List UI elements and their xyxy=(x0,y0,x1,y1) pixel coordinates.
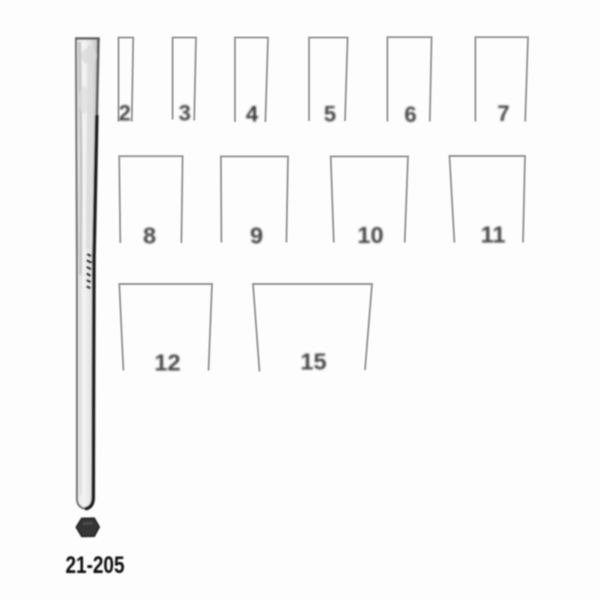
svg-text:9: 9 xyxy=(250,223,263,249)
svg-text:15: 15 xyxy=(300,349,326,375)
svg-text:21-205: 21-205 xyxy=(66,552,125,579)
svg-text:10: 10 xyxy=(357,222,383,248)
svg-text:4: 4 xyxy=(246,102,259,127)
svg-text:12: 12 xyxy=(154,350,180,376)
svg-text:8: 8 xyxy=(143,223,156,249)
svg-text:5: 5 xyxy=(324,102,336,127)
svg-text:11: 11 xyxy=(481,222,506,248)
svg-text:6: 6 xyxy=(404,102,416,127)
svg-text:2: 2 xyxy=(119,101,131,126)
svg-text:3: 3 xyxy=(179,101,191,126)
svg-text:7: 7 xyxy=(497,101,509,126)
